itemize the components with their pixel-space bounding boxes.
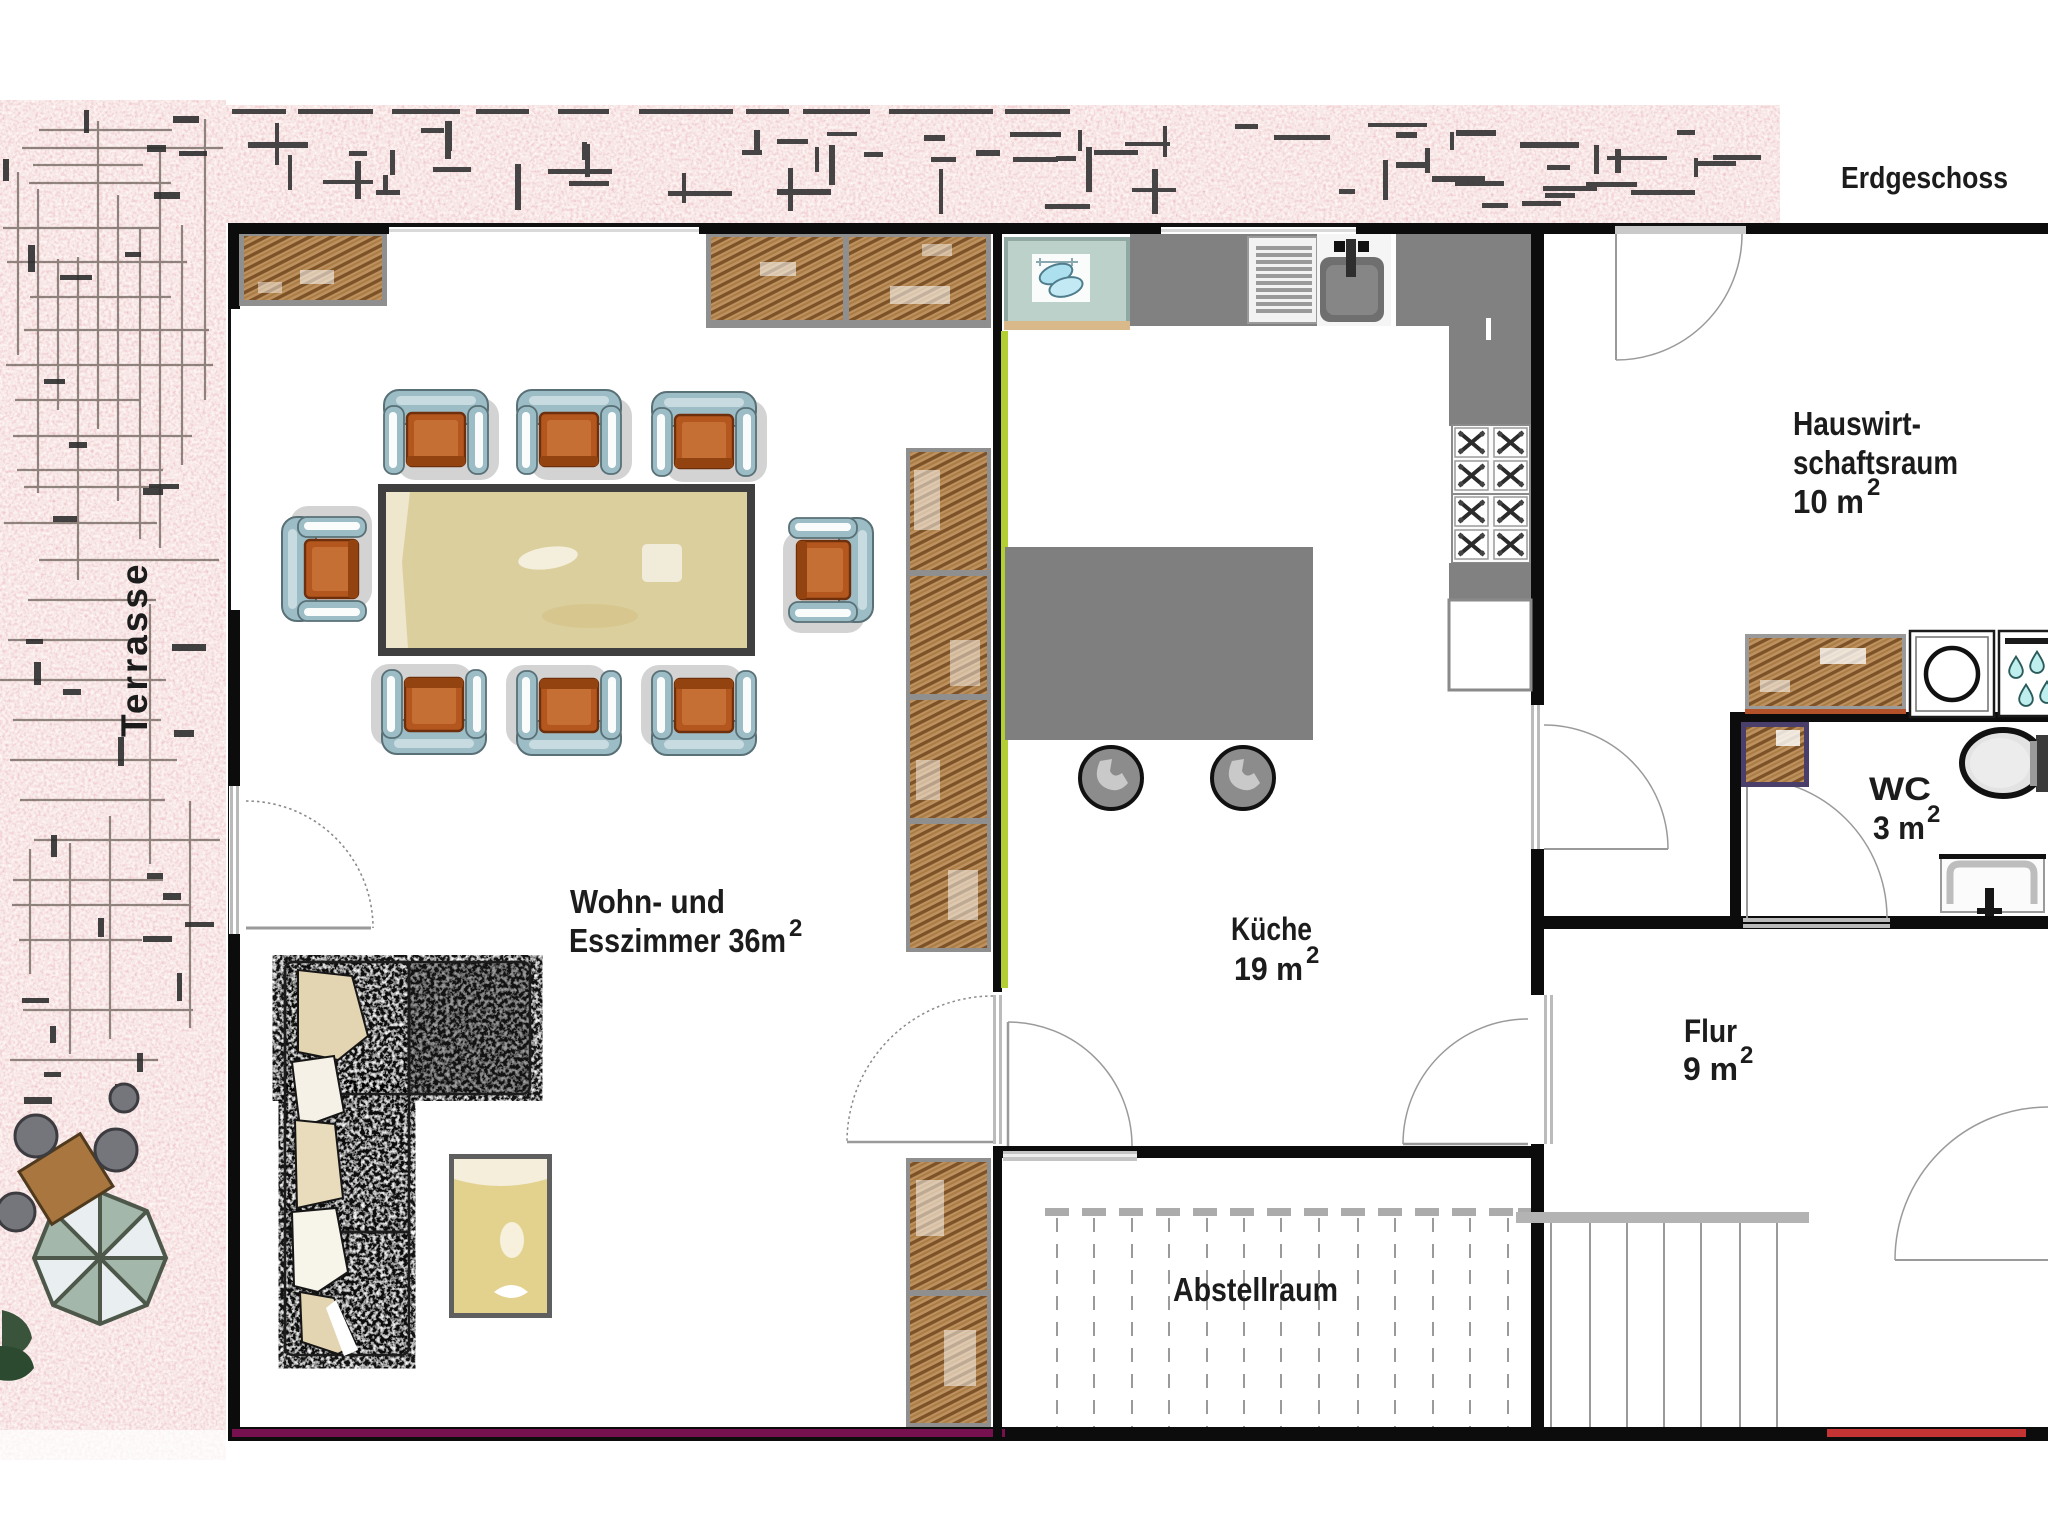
- svg-text:Hauswirt-: Hauswirt-: [1793, 405, 1921, 442]
- svg-text:Wohn- und: Wohn- und: [570, 883, 725, 920]
- svg-text:Terrasse: Terrasse: [114, 561, 155, 737]
- svg-text:2: 2: [1740, 1042, 1753, 1069]
- svg-text:Esszimmer 36m: Esszimmer 36m: [569, 922, 786, 959]
- svg-text:2: 2: [1867, 474, 1880, 501]
- svg-text:Erdgeschoss: Erdgeschoss: [1841, 160, 2008, 195]
- svg-text:2: 2: [1306, 942, 1319, 969]
- svg-text:10 m: 10 m: [1793, 483, 1864, 520]
- svg-text:Abstellraum: Abstellraum: [1173, 1271, 1338, 1308]
- svg-text:Küche: Küche: [1231, 911, 1312, 947]
- svg-text:2: 2: [1927, 801, 1940, 828]
- svg-text:Flur: Flur: [1684, 1013, 1737, 1049]
- svg-text:2: 2: [789, 915, 802, 942]
- svg-text:WC: WC: [1869, 771, 1931, 807]
- svg-text:9 m: 9 m: [1683, 1051, 1738, 1087]
- svg-text:19 m: 19 m: [1234, 951, 1303, 987]
- svg-text:3 m: 3 m: [1873, 810, 1925, 846]
